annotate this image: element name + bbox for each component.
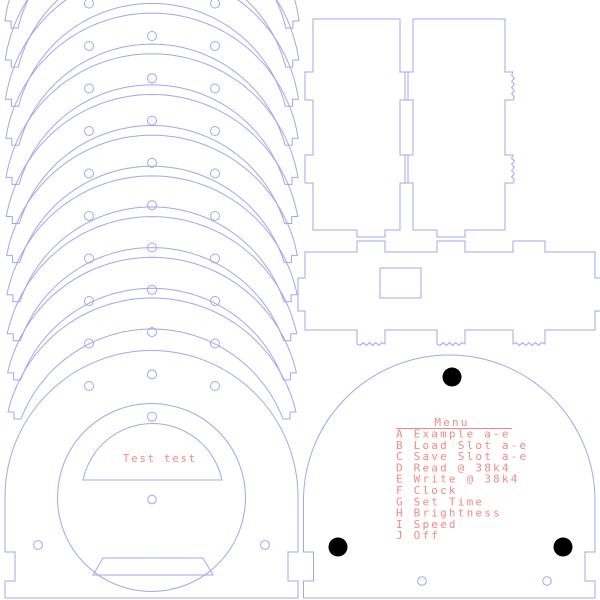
rib-hole <box>85 42 94 51</box>
mounting-dot <box>329 538 348 557</box>
cad-drawing: Menu Test test A Example a-eB Load Slot … <box>0 0 600 600</box>
arch-rib-piece <box>6 95 297 224</box>
side-panels <box>305 19 514 237</box>
rib-hole <box>148 74 157 83</box>
rib-hole <box>148 32 157 41</box>
front-panel-label: Test test <box>123 453 197 465</box>
rib-hole <box>85 297 94 306</box>
rib-hole <box>148 285 157 294</box>
rib-hole <box>85 254 94 263</box>
arch-rib-piece <box>8 257 297 380</box>
arch-rib-piece <box>7 217 297 341</box>
rib-hole <box>148 116 157 125</box>
mounting-dot <box>443 368 462 387</box>
rib-hole <box>85 212 94 221</box>
engraved-text: Menu Test test A Example a-eB Load Slot … <box>123 416 528 542</box>
arch-rib-piece <box>7 176 297 302</box>
rib-hole <box>85 84 94 93</box>
rib-hole <box>211 84 220 93</box>
rib-hole <box>85 169 94 178</box>
rib-hole <box>211 254 220 263</box>
panel-cutout <box>380 268 421 298</box>
front-trapezoid-slot <box>93 558 213 575</box>
menu-corner-hole <box>418 577 427 586</box>
side-panel-a <box>305 19 408 237</box>
front-panel <box>5 351 298 598</box>
front-window <box>83 424 222 480</box>
rib-hole <box>211 127 220 136</box>
rib-hole <box>211 42 220 51</box>
rib-hole <box>211 297 220 306</box>
rib-hole <box>85 0 94 8</box>
front-center-hole <box>148 495 156 503</box>
rib-hole <box>148 201 157 210</box>
rib-hole <box>85 127 94 136</box>
rib-hole <box>211 169 220 178</box>
back-panel <box>298 241 600 345</box>
back-panel-group <box>298 241 600 345</box>
rib-hole <box>211 212 220 221</box>
arch-rib-piece <box>8 298 296 419</box>
front-corner-hole <box>261 541 270 550</box>
front-corner-hole <box>34 541 43 550</box>
rib-hole <box>148 370 157 379</box>
mounting-dot <box>554 538 573 557</box>
laser-cut-layout-canvas: Menu Test test A Example a-eB Load Slot … <box>0 0 600 600</box>
rib-hole <box>211 382 220 391</box>
front-dial-circle <box>58 404 246 592</box>
front-panel-group <box>5 351 298 598</box>
rib-hole <box>211 0 220 8</box>
rib-hole <box>148 412 157 421</box>
arch-rib-piece <box>5 0 298 67</box>
rib-hole <box>85 382 94 391</box>
menu-corner-hole <box>543 577 552 586</box>
side-panel-b <box>405 19 514 237</box>
menu-item: J Off <box>396 529 440 542</box>
